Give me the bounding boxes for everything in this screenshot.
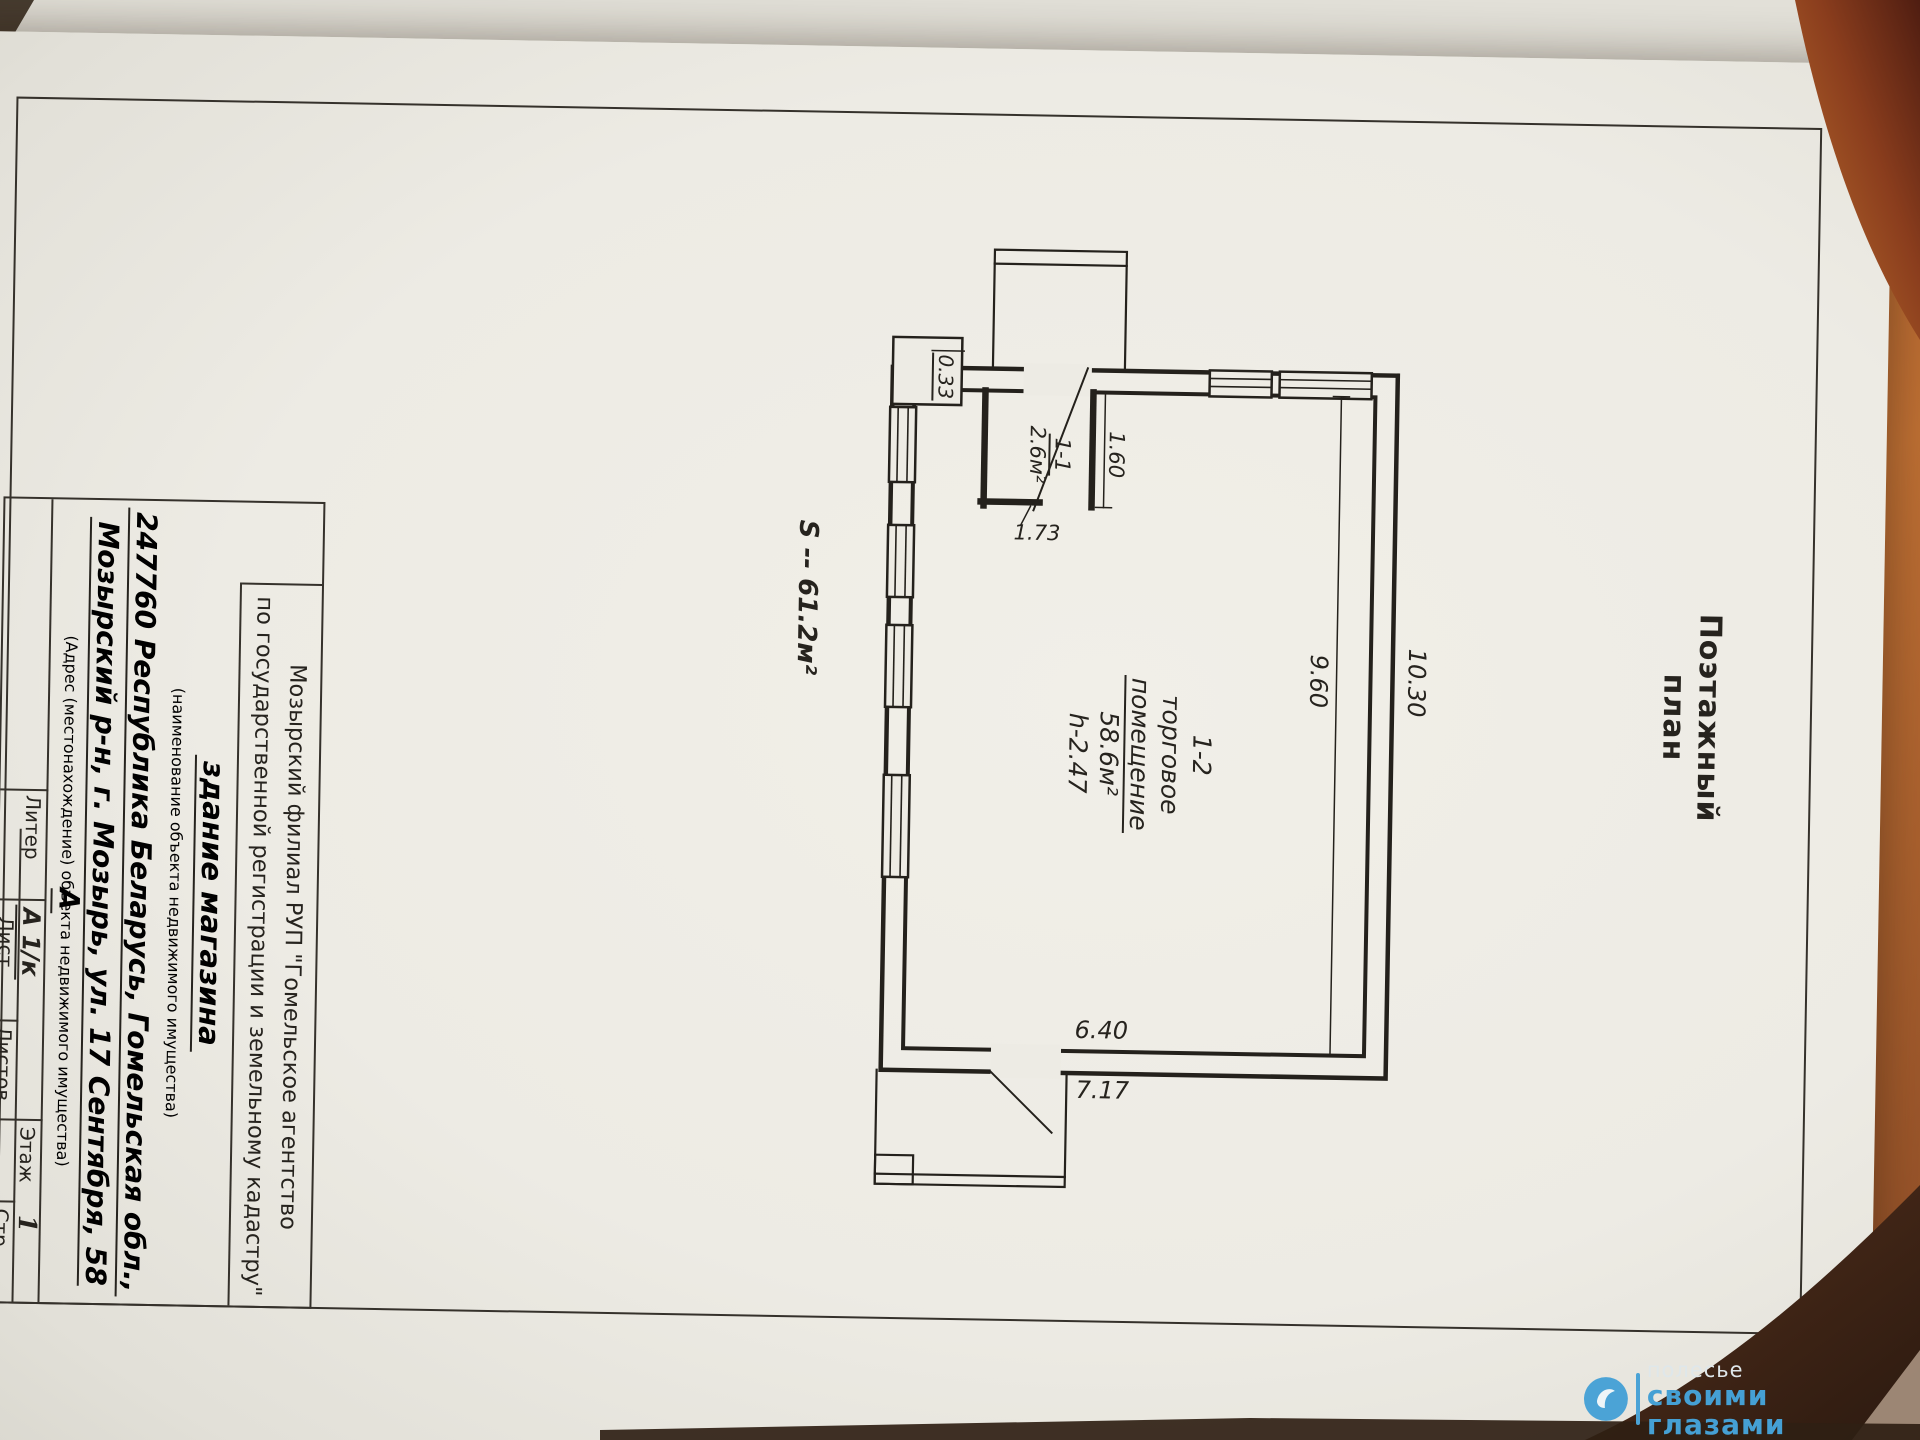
floor-label: Этаж <box>15 1127 40 1183</box>
room-1-2-name-2: помещение <box>1123 672 1157 837</box>
table-divider-4 <box>0 1118 43 1121</box>
liter-label: Литер <box>20 795 45 860</box>
table-divider-2 <box>0 898 46 901</box>
dim-6-40: 6.40 <box>1062 1001 1141 1060</box>
room-1-2-height: h-2.47 <box>1061 671 1095 836</box>
table-divider-1 <box>0 788 48 791</box>
room-label-vestibule: 1-1 2.6м² <box>1024 406 1076 503</box>
page-label: Стр. <box>0 1208 13 1253</box>
room-label-trading-hall: 1-2 торговое помещение 58.6м² h-2.47 <box>1061 671 1219 838</box>
title-block-divider <box>242 583 322 586</box>
room-1-2-name-1: торговое <box>1154 673 1188 838</box>
watermark-line-2: своими глазами <box>1647 1381 1917 1440</box>
agency-name: Мозырский филиал РУП "Гомельское агентст… <box>236 593 316 1301</box>
dim-9-60: 9.60 <box>1304 631 1334 731</box>
dim-1-60: 1.60 <box>1104 418 1129 492</box>
object-name-caption: (наименование объекта недвижимого имущес… <box>158 501 191 1304</box>
dim-0-33-value: 0.33 <box>931 352 958 401</box>
watermark-line-1: полесье <box>1647 1359 1917 1381</box>
listov-label: Листов <box>0 1026 16 1101</box>
photo-of-floor-plan-document: Поэтажный план <box>0 0 1920 1440</box>
list-label: Лист <box>0 916 18 967</box>
left-porch <box>993 250 1127 371</box>
window-symbols-left-wall <box>1209 370 1371 399</box>
dim-7-17-value: 7.17 <box>1075 1076 1129 1105</box>
room-1-2-number: 1-2 <box>1185 673 1219 838</box>
watermark: полесье своими глазами <box>1583 1366 1917 1432</box>
floor-value: 1 <box>13 1215 42 1233</box>
title-block: Мозырский филиал РУП "Гомельское агентст… <box>0 496 325 1308</box>
document-content: Поэтажный план <box>0 0 1920 1410</box>
dim-1-73: 1.73 <box>1005 504 1070 561</box>
room-1-1-area: 2.6м² <box>1024 406 1051 502</box>
watermark-text: полесье своими глазами <box>1647 1359 1917 1440</box>
liter-value: А 1/к <box>14 905 45 980</box>
dim-6-40-value: 6.40 <box>1074 1016 1128 1045</box>
total-area-label: S -- 61.2м² <box>790 502 823 692</box>
door-leaf-right <box>990 1072 1053 1133</box>
dim-0-33: 0.33 <box>933 351 958 403</box>
watermark-divider <box>1636 1373 1640 1425</box>
object-name: здание магазина <box>187 502 235 1305</box>
dim-10-30: 10.30 <box>1402 633 1432 733</box>
watermark-logo-icon <box>1583 1376 1629 1422</box>
room-1-2-area: 58.6м² <box>1092 671 1126 836</box>
address-line-1: 247760 Республика Беларусь, Гомельская о… <box>116 501 163 1304</box>
dim-1-73-value: 1.73 <box>1013 520 1060 545</box>
window-symbols-bottom-wall <box>882 407 916 877</box>
page-title: Поэтажный план <box>1653 567 1728 868</box>
dim-7-17: 7.17 <box>1063 1061 1142 1120</box>
right-porch <box>875 1070 1067 1187</box>
room-1-1-number: 1-1 <box>1049 407 1076 503</box>
